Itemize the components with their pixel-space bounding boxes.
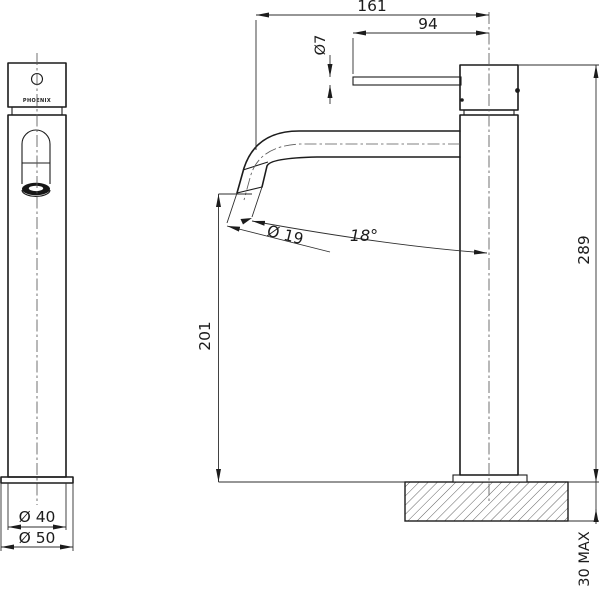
lever-handle bbox=[353, 77, 461, 85]
spout-end-face bbox=[237, 187, 262, 193]
svg-text:Ø7: Ø7 bbox=[313, 35, 329, 56]
front-spout bbox=[22, 130, 50, 196]
faucet-dimension-drawing: PHOENIX 161 94 Ø7 bbox=[0, 0, 600, 600]
set-screw-mark bbox=[515, 88, 520, 93]
side-view bbox=[237, 65, 520, 475]
svg-text:Ø 40: Ø 40 bbox=[19, 508, 56, 526]
svg-text:289: 289 bbox=[575, 235, 593, 265]
side-spout bbox=[237, 131, 460, 193]
dim-spout-diameter: Ø 19 bbox=[227, 187, 330, 252]
svg-text:161: 161 bbox=[357, 0, 387, 15]
dim-mounting-thickness: 30 MAX bbox=[568, 482, 599, 587]
set-screw-mark-2 bbox=[460, 98, 464, 102]
svg-text:94: 94 bbox=[418, 15, 438, 33]
side-base-plate bbox=[453, 475, 527, 482]
technical-drawing: PHOENIX 161 94 Ø7 bbox=[0, 0, 600, 600]
bench-section bbox=[405, 482, 568, 521]
svg-text:Ø 19: Ø 19 bbox=[265, 222, 305, 248]
dim-overall-height: 289 bbox=[518, 65, 599, 482]
spout-tangent-line bbox=[243, 162, 268, 170]
dim-reach-overall: 161 bbox=[256, 0, 489, 150]
svg-text:Ø 50: Ø 50 bbox=[19, 529, 56, 547]
svg-text:30 MAX: 30 MAX bbox=[577, 531, 593, 586]
svg-text:18°: 18° bbox=[350, 226, 378, 245]
dim-lever-diameter: Ø7 bbox=[313, 35, 330, 104]
svg-text:201: 201 bbox=[196, 321, 214, 351]
spout-centerline bbox=[244, 144, 460, 200]
